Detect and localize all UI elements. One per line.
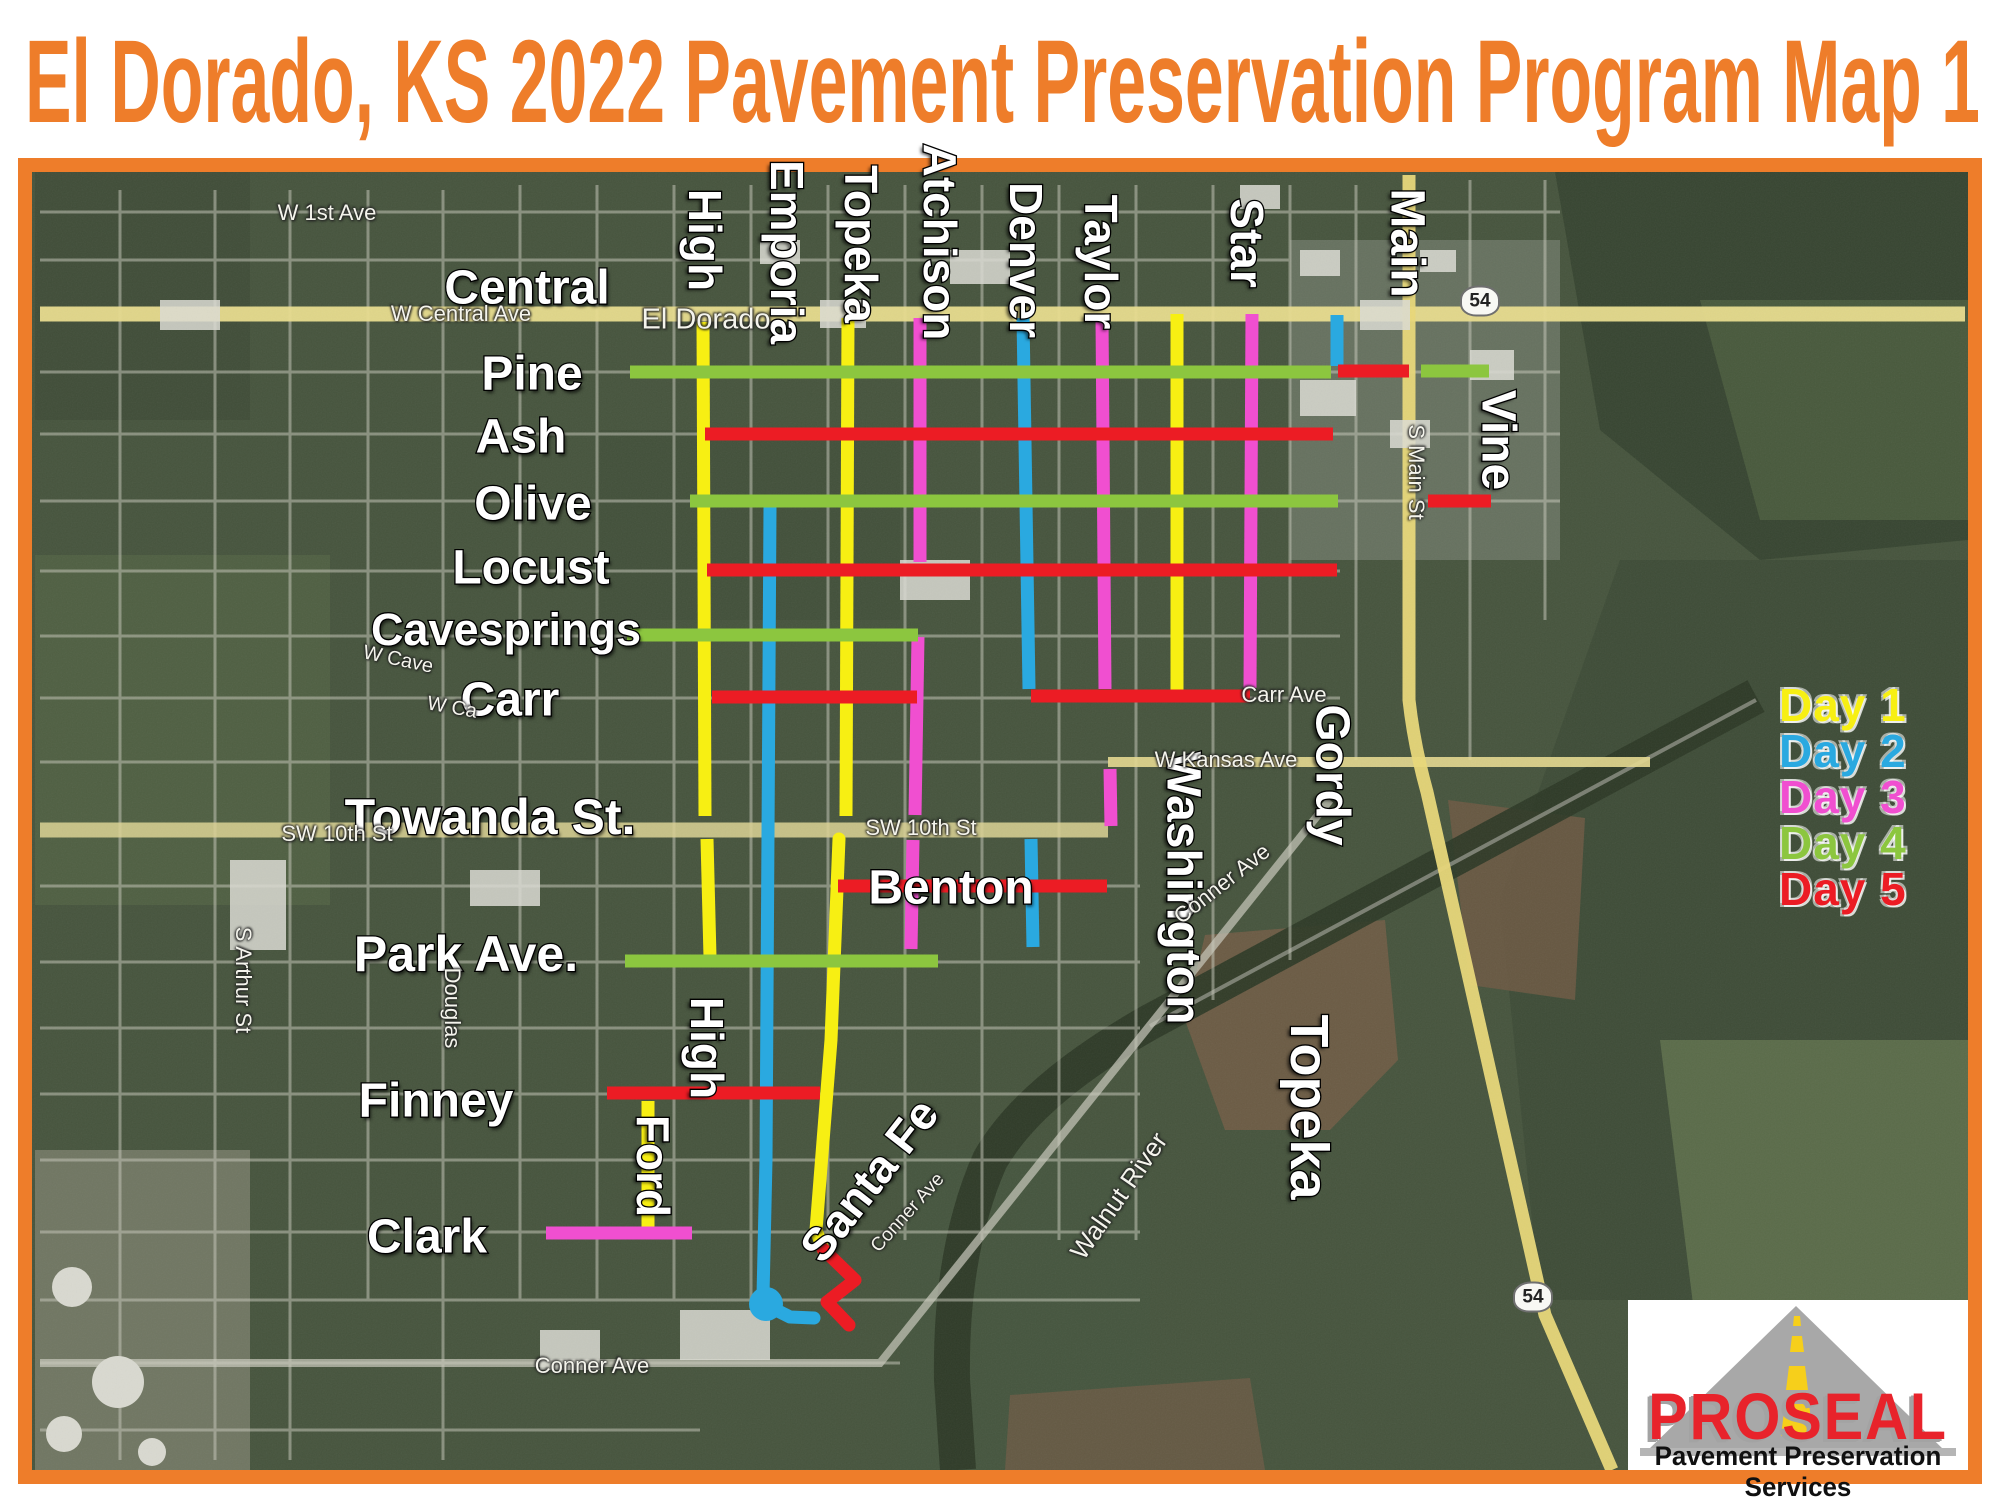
logo-tagline: Pavement Preservation Services [1635, 1441, 1961, 1503]
pavement-segment [1110, 769, 1111, 826]
title-banner: El Dorado, KS 2022 Pavement Preservation… [0, 0, 2000, 158]
proseal-logo: PROSEAL Pavement Preservation Services [1628, 1300, 1968, 1470]
pavement-segment [911, 840, 913, 949]
legend-item-day-2: Day 2 [1779, 728, 1907, 774]
pavement-segment [763, 508, 770, 1296]
pavement-segment [915, 637, 918, 815]
satellite-map-image [32, 172, 1968, 1470]
program-map-page: El Dorado, KS 2022 Pavement Preservation… [0, 0, 2000, 1509]
page-title: El Dorado, KS 2022 Pavement Preservation… [25, 16, 1980, 148]
pavement-segment [1031, 839, 1033, 947]
legend-item-day-4: Day 4 [1779, 820, 1907, 866]
legend-item-day-5: Day 5 [1779, 866, 1907, 912]
legend-item-day-3: Day 3 [1779, 774, 1907, 820]
pavement-segment [703, 322, 705, 816]
legend-item-day-1: Day 1 [1779, 682, 1907, 728]
pavement-segment [707, 839, 710, 957]
day-legend: Day 1Day 2Day 3Day 4Day 5 [1779, 682, 1907, 912]
pavement-segment-endcap [749, 1287, 783, 1321]
